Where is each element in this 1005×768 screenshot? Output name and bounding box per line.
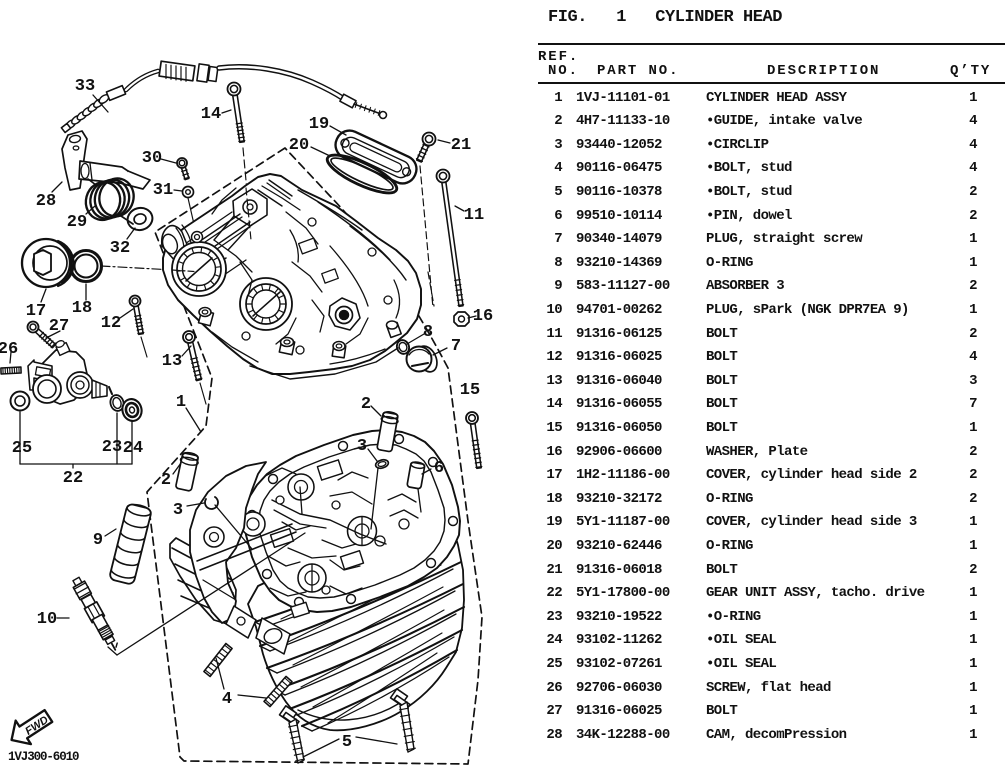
svg-text:9: 9 <box>93 531 103 550</box>
svg-text:30: 30 <box>142 149 162 168</box>
svg-text:4: 4 <box>222 690 232 709</box>
svg-text:10: 10 <box>37 610 57 629</box>
svg-text:2: 2 <box>161 471 171 490</box>
svg-text:7: 7 <box>451 337 461 356</box>
svg-text:3: 3 <box>173 501 183 520</box>
svg-text:29: 29 <box>67 213 87 232</box>
svg-text:6: 6 <box>434 459 444 478</box>
svg-text:20: 20 <box>289 136 309 155</box>
svg-text:32: 32 <box>110 239 130 258</box>
svg-text:1: 1 <box>176 393 186 412</box>
svg-text:33: 33 <box>75 77 95 96</box>
svg-text:24: 24 <box>123 439 143 458</box>
svg-text:22: 22 <box>63 469 83 488</box>
svg-text:8: 8 <box>423 323 433 342</box>
svg-text:2: 2 <box>361 395 371 414</box>
svg-text:26: 26 <box>0 340 18 359</box>
svg-text:15: 15 <box>460 381 480 400</box>
svg-text:11: 11 <box>464 206 484 225</box>
svg-text:23: 23 <box>102 438 122 457</box>
svg-text:16: 16 <box>473 307 493 326</box>
svg-text:17: 17 <box>26 302 46 321</box>
svg-text:12: 12 <box>101 314 121 333</box>
svg-text:14: 14 <box>201 105 221 124</box>
svg-text:3: 3 <box>357 437 367 456</box>
svg-text:13: 13 <box>162 352 182 371</box>
svg-text:25: 25 <box>12 439 32 458</box>
svg-text:21: 21 <box>451 136 471 155</box>
svg-text:31: 31 <box>153 181 173 200</box>
svg-text:19: 19 <box>309 115 329 134</box>
svg-text:27: 27 <box>49 317 69 336</box>
svg-text:18: 18 <box>72 299 92 318</box>
svg-text:28: 28 <box>36 192 56 211</box>
svg-text:5: 5 <box>342 733 352 752</box>
